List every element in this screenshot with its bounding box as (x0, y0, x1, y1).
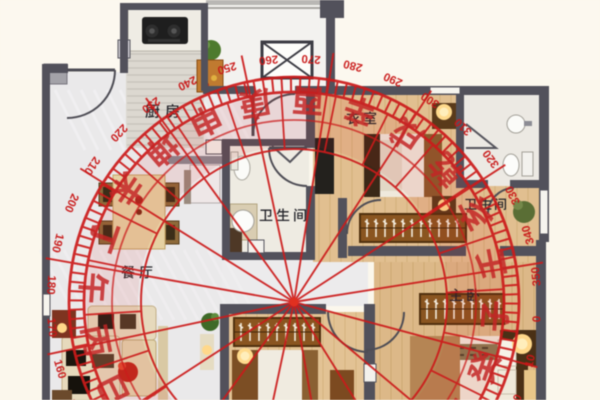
svg-text:170: 170 (44, 317, 58, 337)
svg-text:180: 180 (44, 275, 57, 295)
svg-text:270: 270 (301, 52, 321, 65)
svg-text:0: 0 (531, 315, 543, 322)
svg-text:260: 260 (258, 52, 278, 66)
svg-text:350: 350 (530, 266, 544, 286)
